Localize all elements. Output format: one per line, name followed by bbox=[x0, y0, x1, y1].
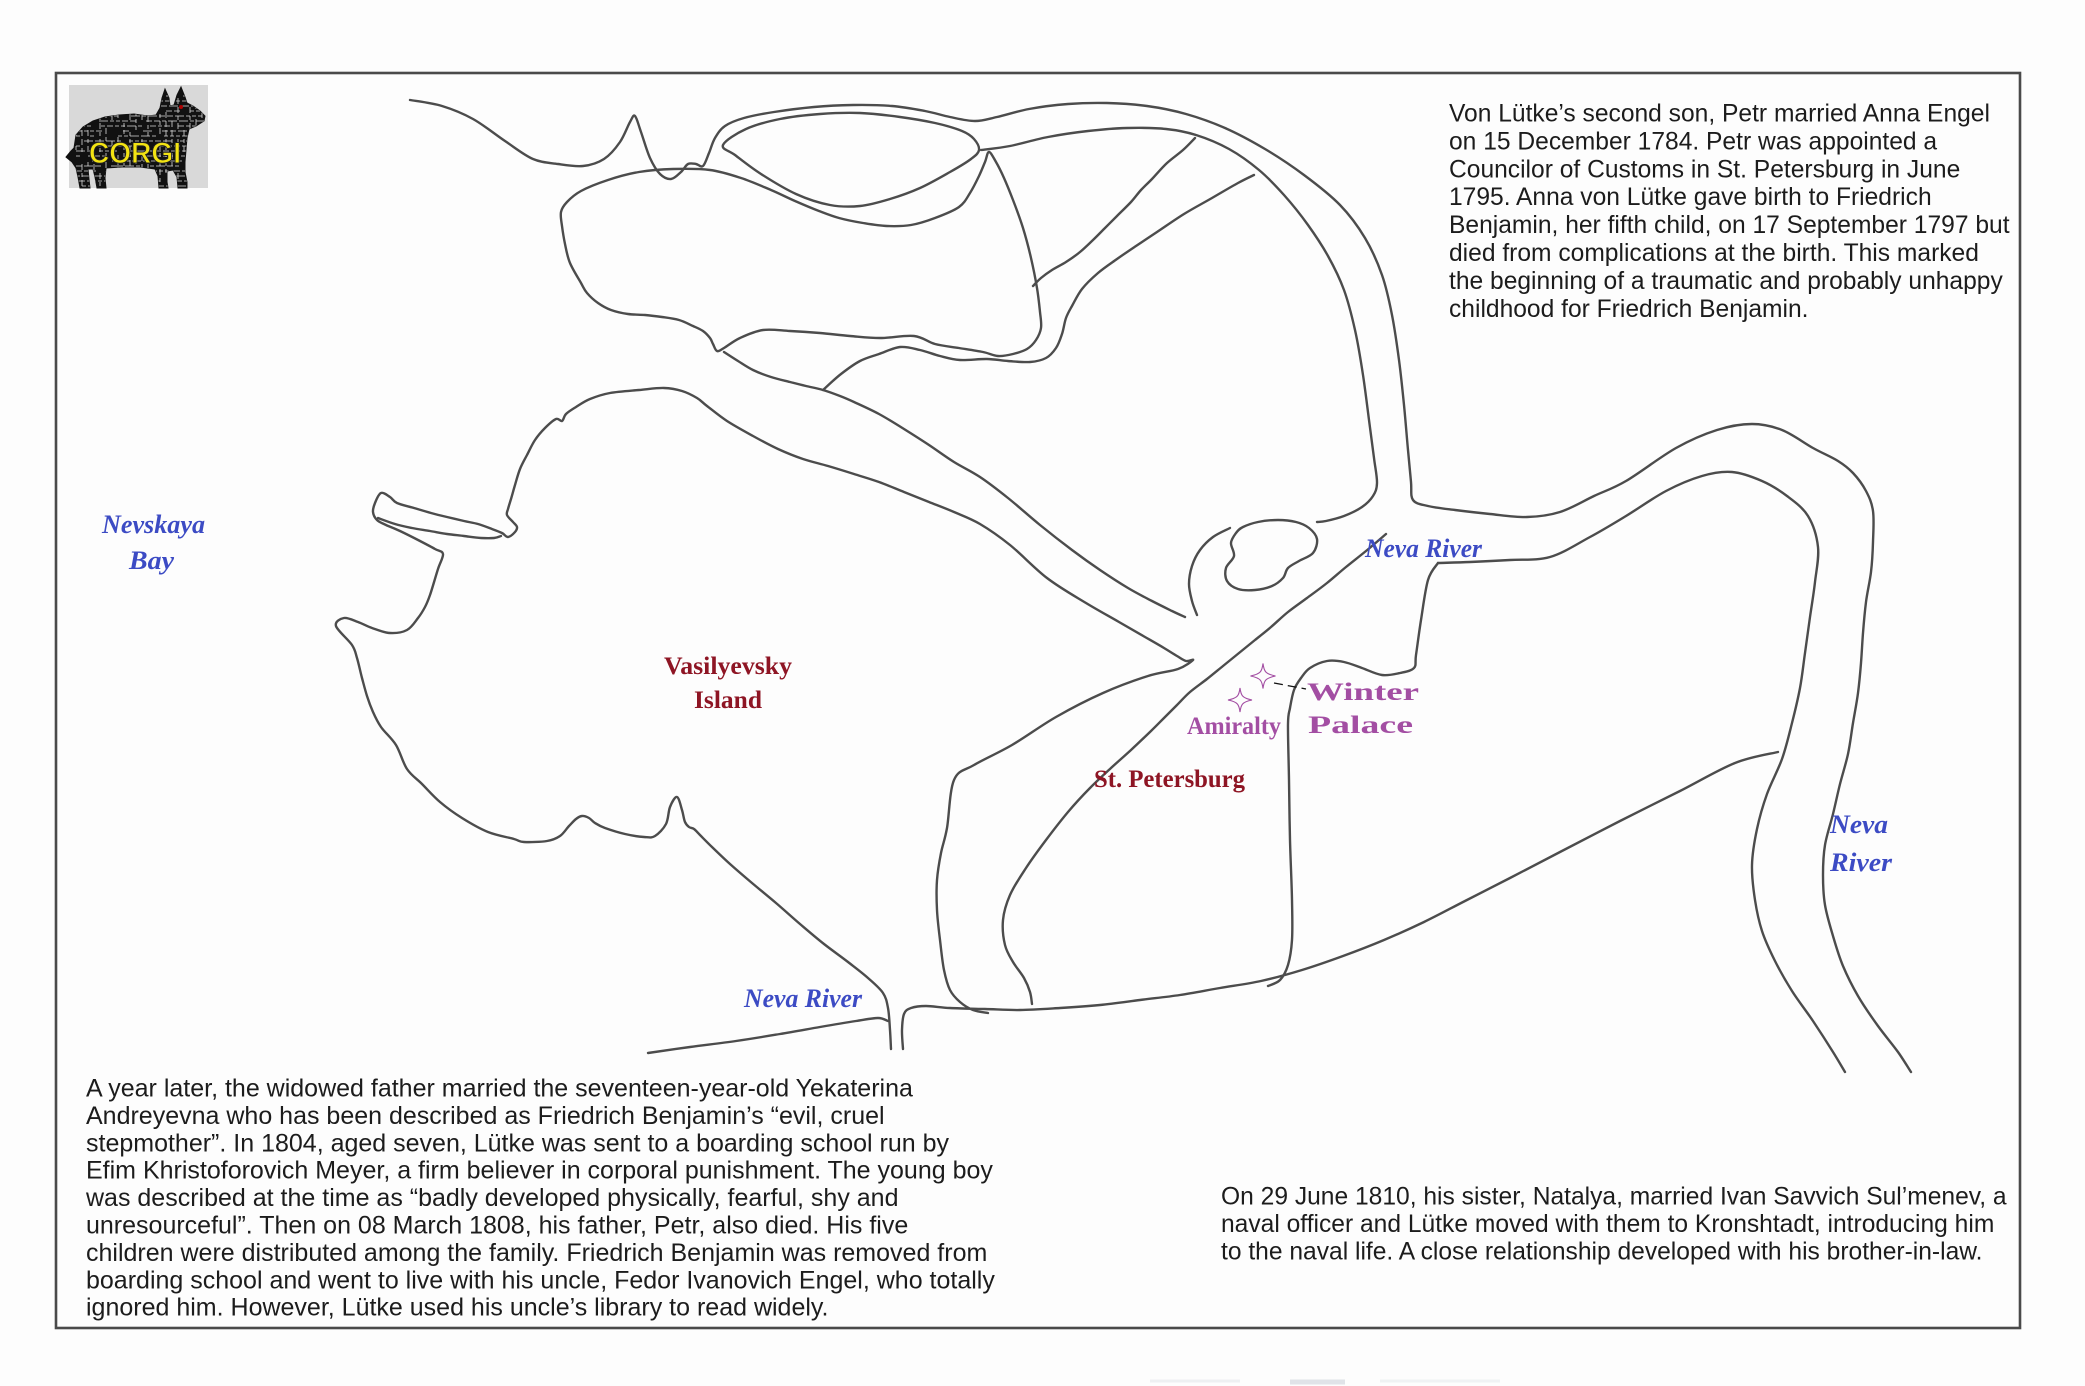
svg-text:Nevskaya: Nevskaya bbox=[101, 510, 205, 539]
svg-text:died from complications at the: died from complications at the birth. Th… bbox=[1449, 240, 1979, 267]
svg-text:Palace: Palace bbox=[1308, 712, 1413, 739]
svg-text:Vasilyevsky: Vasilyevsky bbox=[664, 653, 793, 680]
svg-text:Island: Island bbox=[694, 687, 762, 714]
svg-text:to the naval life. A close rel: to the naval life. A close relationship … bbox=[1221, 1238, 1982, 1265]
svg-text:A year later, the widowed fath: A year later, the widowed father married… bbox=[86, 1075, 913, 1103]
svg-text:St. Petersburg: St. Petersburg bbox=[1094, 766, 1245, 793]
svg-text:was described at the time as “: was described at the time as “badly deve… bbox=[85, 1184, 898, 1212]
svg-text:ignored him. However, Lütke us: ignored him. However, Lütke used his unc… bbox=[86, 1294, 829, 1322]
svg-text:Neva River: Neva River bbox=[1364, 534, 1483, 563]
svg-text:childhood for Friedrich Benjam: childhood for Friedrich Benjamin. bbox=[1449, 296, 1809, 323]
svg-text:1795. Anna von Lütke gave birt: 1795. Anna von Lütke gave birth to Fried… bbox=[1449, 184, 1932, 211]
svg-text:CORGI: CORGI bbox=[89, 137, 181, 170]
svg-text:Amiralty: Amiralty bbox=[1187, 713, 1281, 740]
svg-text:Efim Khristoforovich Meyer, a: Efim Khristoforovich Meyer, a firm belie… bbox=[86, 1157, 993, 1185]
svg-text:On 29 June 1810, his sister, N: On 29 June 1810, his sister, Natalya, ma… bbox=[1221, 1184, 2007, 1211]
svg-text:River: River bbox=[1829, 848, 1893, 877]
svg-text:Bay: Bay bbox=[128, 546, 175, 575]
svg-text:Councilor of Customs in St. Pe: Councilor of Customs in St. Petersburg i… bbox=[1449, 156, 1960, 183]
svg-text:Von Lütke’s second son, Petr m: Von Lütke’s second son, Petr married Ann… bbox=[1449, 101, 1990, 128]
svg-text:children were distributed amon: children were distributed among the fami… bbox=[86, 1239, 987, 1267]
svg-text:boarding school and went to li: boarding school and went to live with hi… bbox=[86, 1266, 995, 1294]
svg-text:Winter: Winter bbox=[1307, 679, 1419, 706]
svg-text:stepmother”. In 1804, aged sev: stepmother”. In 1804, aged seven, Lütke … bbox=[86, 1129, 950, 1157]
svg-text:Neva River: Neva River bbox=[743, 984, 863, 1013]
svg-text:unresourceful”. Then on 08 Mar: unresourceful”. Then on 08 March 1808, h… bbox=[86, 1212, 908, 1240]
svg-text:on 15 December 1784. Petr was: on 15 December 1784. Petr was appointed … bbox=[1449, 128, 1937, 155]
svg-text:Benjamin, her fifth child, on: Benjamin, her fifth child, on 17 Septemb… bbox=[1449, 212, 2010, 239]
svg-text:the beginning of a traumatic a: the beginning of a traumatic and probabl… bbox=[1449, 268, 2003, 295]
svg-text:Andreyevna who has been descri: Andreyevna who has been described as Fri… bbox=[86, 1102, 885, 1130]
svg-text:Neva: Neva bbox=[1829, 810, 1888, 839]
svg-text:naval officer and Lütke moved: naval officer and Lütke moved with them … bbox=[1221, 1211, 1994, 1238]
